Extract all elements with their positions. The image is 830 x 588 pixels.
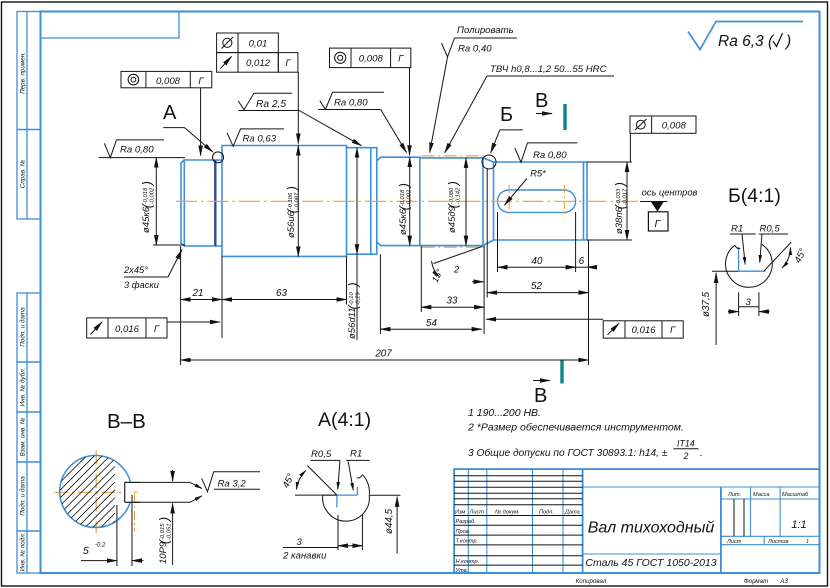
svg-text:-0,018: -0,018 bbox=[400, 189, 406, 206]
svg-text:R5*: R5* bbox=[530, 169, 546, 179]
svg-text:ТВЧ h0,8...1,2 50...55 HRC: ТВЧ h0,8...1,2 50...55 HRC bbox=[490, 64, 607, 75]
svg-text:Копировал: Копировал bbox=[576, 578, 607, 585]
svg-text:-0,087: -0,087 bbox=[294, 192, 300, 209]
svg-text:R0,5: R0,5 bbox=[760, 224, 781, 235]
svg-text:0,016: 0,016 bbox=[631, 325, 656, 336]
svg-text:ø45к6: ø45к6 bbox=[398, 208, 409, 235]
svg-text:Утв.: Утв. bbox=[455, 568, 469, 574]
svg-text:1:1: 1:1 bbox=[791, 519, 806, 531]
svg-text:5: 5 bbox=[83, 545, 89, 557]
svg-text:В: В bbox=[535, 90, 548, 112]
svg-text:Подп.: Подп. bbox=[539, 509, 554, 515]
svg-text:63: 63 bbox=[276, 288, 287, 299]
svg-text:Инв. № дубл.: Инв. № дубл. bbox=[19, 368, 27, 407]
svg-text:3 Общие допуски по ГОСТ 30893: 3 Общие допуски по ГОСТ 30893.1: h14, ± bbox=[468, 447, 668, 459]
svg-text:Б(4:1): Б(4:1) bbox=[728, 185, 781, 207]
svg-text:R1: R1 bbox=[731, 224, 743, 235]
svg-text:Г: Г bbox=[398, 54, 404, 65]
svg-text:Вал тихоходный: Вал тихоходный bbox=[588, 520, 715, 537]
svg-text:0,01: 0,01 bbox=[249, 39, 268, 50]
svg-text:Н.контр.: Н.контр. bbox=[456, 559, 480, 565]
svg-text:ø38п6: ø38п6 bbox=[614, 206, 625, 234]
svg-text:Т.контр.: Т.контр. bbox=[456, 539, 479, 545]
svg-text:-0,051: -0,051 bbox=[166, 524, 172, 540]
svg-text:-0,015: -0,015 bbox=[160, 523, 166, 540]
svg-text:ø44,5: ø44,5 bbox=[384, 508, 395, 534]
svg-text:Ra 0,80: Ra 0,80 bbox=[533, 150, 567, 161]
svg-text:Подп. и дата: Подп. и дата bbox=[19, 307, 27, 347]
svg-text:Ra 0,80: Ra 0,80 bbox=[120, 145, 154, 156]
svg-text:2: 2 bbox=[453, 265, 460, 275]
svg-text:Справ. №: Справ. № bbox=[20, 160, 27, 189]
svg-text:Г: Г bbox=[285, 58, 291, 69]
svg-text:6: 6 bbox=[579, 256, 585, 267]
svg-text:Сталь 45 ГОСТ 1050-2013: Сталь 45 ГОСТ 1050-2013 bbox=[585, 557, 716, 569]
svg-text:В: В bbox=[534, 385, 547, 407]
svg-text:0,008: 0,008 bbox=[662, 121, 687, 132]
svg-text:-0,017: -0,017 bbox=[622, 188, 628, 205]
svg-text:2 канавки: 2 канавки bbox=[282, 551, 327, 562]
svg-text:Дата: Дата bbox=[564, 509, 580, 515]
svg-text:40: 40 bbox=[532, 256, 543, 267]
svg-text:1 190...200 НВ.: 1 190...200 НВ. bbox=[468, 407, 541, 419]
svg-text:-0,10: -0,10 bbox=[349, 292, 355, 306]
svg-text:Лист: Лист bbox=[726, 539, 742, 545]
svg-text:Полировать: Полировать bbox=[457, 25, 514, 36]
svg-text:3: 3 bbox=[297, 537, 303, 548]
svg-text:ø37,5: ø37,5 bbox=[701, 291, 712, 317]
svg-text:-0,29: -0,29 bbox=[355, 292, 361, 306]
svg-text:ø56d11: ø56d11 bbox=[347, 307, 358, 339]
svg-text:Лит.: Лит. bbox=[727, 492, 741, 498]
svg-text:-0,080: -0,080 bbox=[449, 187, 455, 204]
svg-text:А3: А3 bbox=[779, 578, 788, 585]
svg-text:2х45°: 2х45° bbox=[123, 265, 148, 275]
svg-text:0,008: 0,008 bbox=[359, 54, 384, 65]
svg-text:Лист: Лист bbox=[469, 509, 485, 515]
svg-text:-0,142: -0,142 bbox=[455, 187, 461, 204]
svg-text:-0,106: -0,106 bbox=[288, 192, 294, 209]
svg-text:54: 54 bbox=[426, 318, 437, 329]
svg-text:0,012: 0,012 bbox=[246, 58, 271, 69]
svg-text:-0,002: -0,002 bbox=[149, 187, 155, 204]
svg-text:Г: Г bbox=[670, 325, 676, 336]
svg-text:0,016: 0,016 bbox=[115, 324, 140, 335]
svg-text:Масса: Масса bbox=[753, 492, 770, 498]
svg-text:-0,002: -0,002 bbox=[406, 189, 412, 206]
svg-text:R0,5: R0,5 bbox=[311, 449, 332, 460]
svg-text:Г: Г bbox=[198, 76, 204, 87]
svg-text:207: 207 bbox=[374, 349, 392, 360]
svg-text:В–В: В–В bbox=[107, 410, 146, 433]
svg-text:№ докум.: № докум. bbox=[495, 509, 520, 515]
svg-text:Инв. № подл.: Инв. № подл. bbox=[19, 532, 27, 571]
svg-text:Масштаб: Масштаб bbox=[782, 492, 809, 498]
svg-text:33: 33 bbox=[447, 296, 458, 307]
svg-text:): ) bbox=[784, 33, 791, 50]
svg-text:R1: R1 bbox=[350, 449, 362, 460]
svg-text:А(4:1): А(4:1) bbox=[318, 409, 371, 431]
svg-text:Взам. инв. №: Взам. инв. № bbox=[20, 417, 27, 456]
svg-text:Пров.: Пров. bbox=[456, 529, 471, 535]
svg-text:Подп. и дата: Подп. и дата bbox=[19, 476, 27, 516]
svg-text:ø56u6: ø56u6 bbox=[286, 210, 297, 238]
svg-text:Перв. примен.: Перв. примен. bbox=[20, 52, 27, 94]
svg-text:21: 21 bbox=[192, 288, 204, 299]
svg-text:Листов: Листов bbox=[767, 539, 788, 545]
svg-text:Разраб.: Разраб. bbox=[456, 519, 476, 525]
svg-text:Ra 0,40: Ra 0,40 bbox=[458, 44, 492, 55]
svg-text:0,008: 0,008 bbox=[156, 76, 181, 87]
svg-text:-0,033: -0,033 bbox=[616, 188, 622, 205]
svg-text:IT14: IT14 bbox=[677, 439, 695, 449]
svg-text:Ra 0,80: Ra 0,80 bbox=[334, 98, 368, 109]
svg-text:52: 52 bbox=[531, 281, 542, 292]
svg-text:ø45д9: ø45д9 bbox=[447, 205, 458, 233]
svg-text:1: 1 bbox=[806, 539, 809, 545]
svg-text:Изм.: Изм. bbox=[455, 509, 467, 515]
svg-text:-0,2: -0,2 bbox=[95, 543, 106, 549]
svg-text:Ra 0,63: Ra 0,63 bbox=[243, 134, 277, 145]
svg-text:.: . bbox=[700, 448, 703, 459]
svg-text:ось центров: ось центров bbox=[642, 188, 698, 198]
svg-text:Формат: Формат bbox=[744, 578, 769, 585]
svg-text:2 *Размер обеспечивается инст: 2 *Размер обеспечивается инструментом. bbox=[467, 422, 684, 434]
svg-text:А: А bbox=[163, 102, 177, 124]
svg-text:3 фаски: 3 фаски bbox=[124, 280, 159, 290]
svg-text:Г: Г bbox=[154, 324, 160, 335]
svg-text:Ra 3,2: Ra 3,2 bbox=[218, 479, 247, 490]
svg-text:Б: Б bbox=[500, 104, 513, 126]
svg-text:2: 2 bbox=[683, 451, 689, 461]
svg-text:-0,018: -0,018 bbox=[143, 187, 149, 204]
svg-text:ø45к6: ø45к6 bbox=[141, 206, 152, 233]
svg-text:Ra 6,3 (: Ra 6,3 ( bbox=[718, 33, 775, 50]
svg-text:3: 3 bbox=[746, 297, 752, 308]
svg-text:Ra 2,5: Ra 2,5 bbox=[256, 99, 286, 110]
